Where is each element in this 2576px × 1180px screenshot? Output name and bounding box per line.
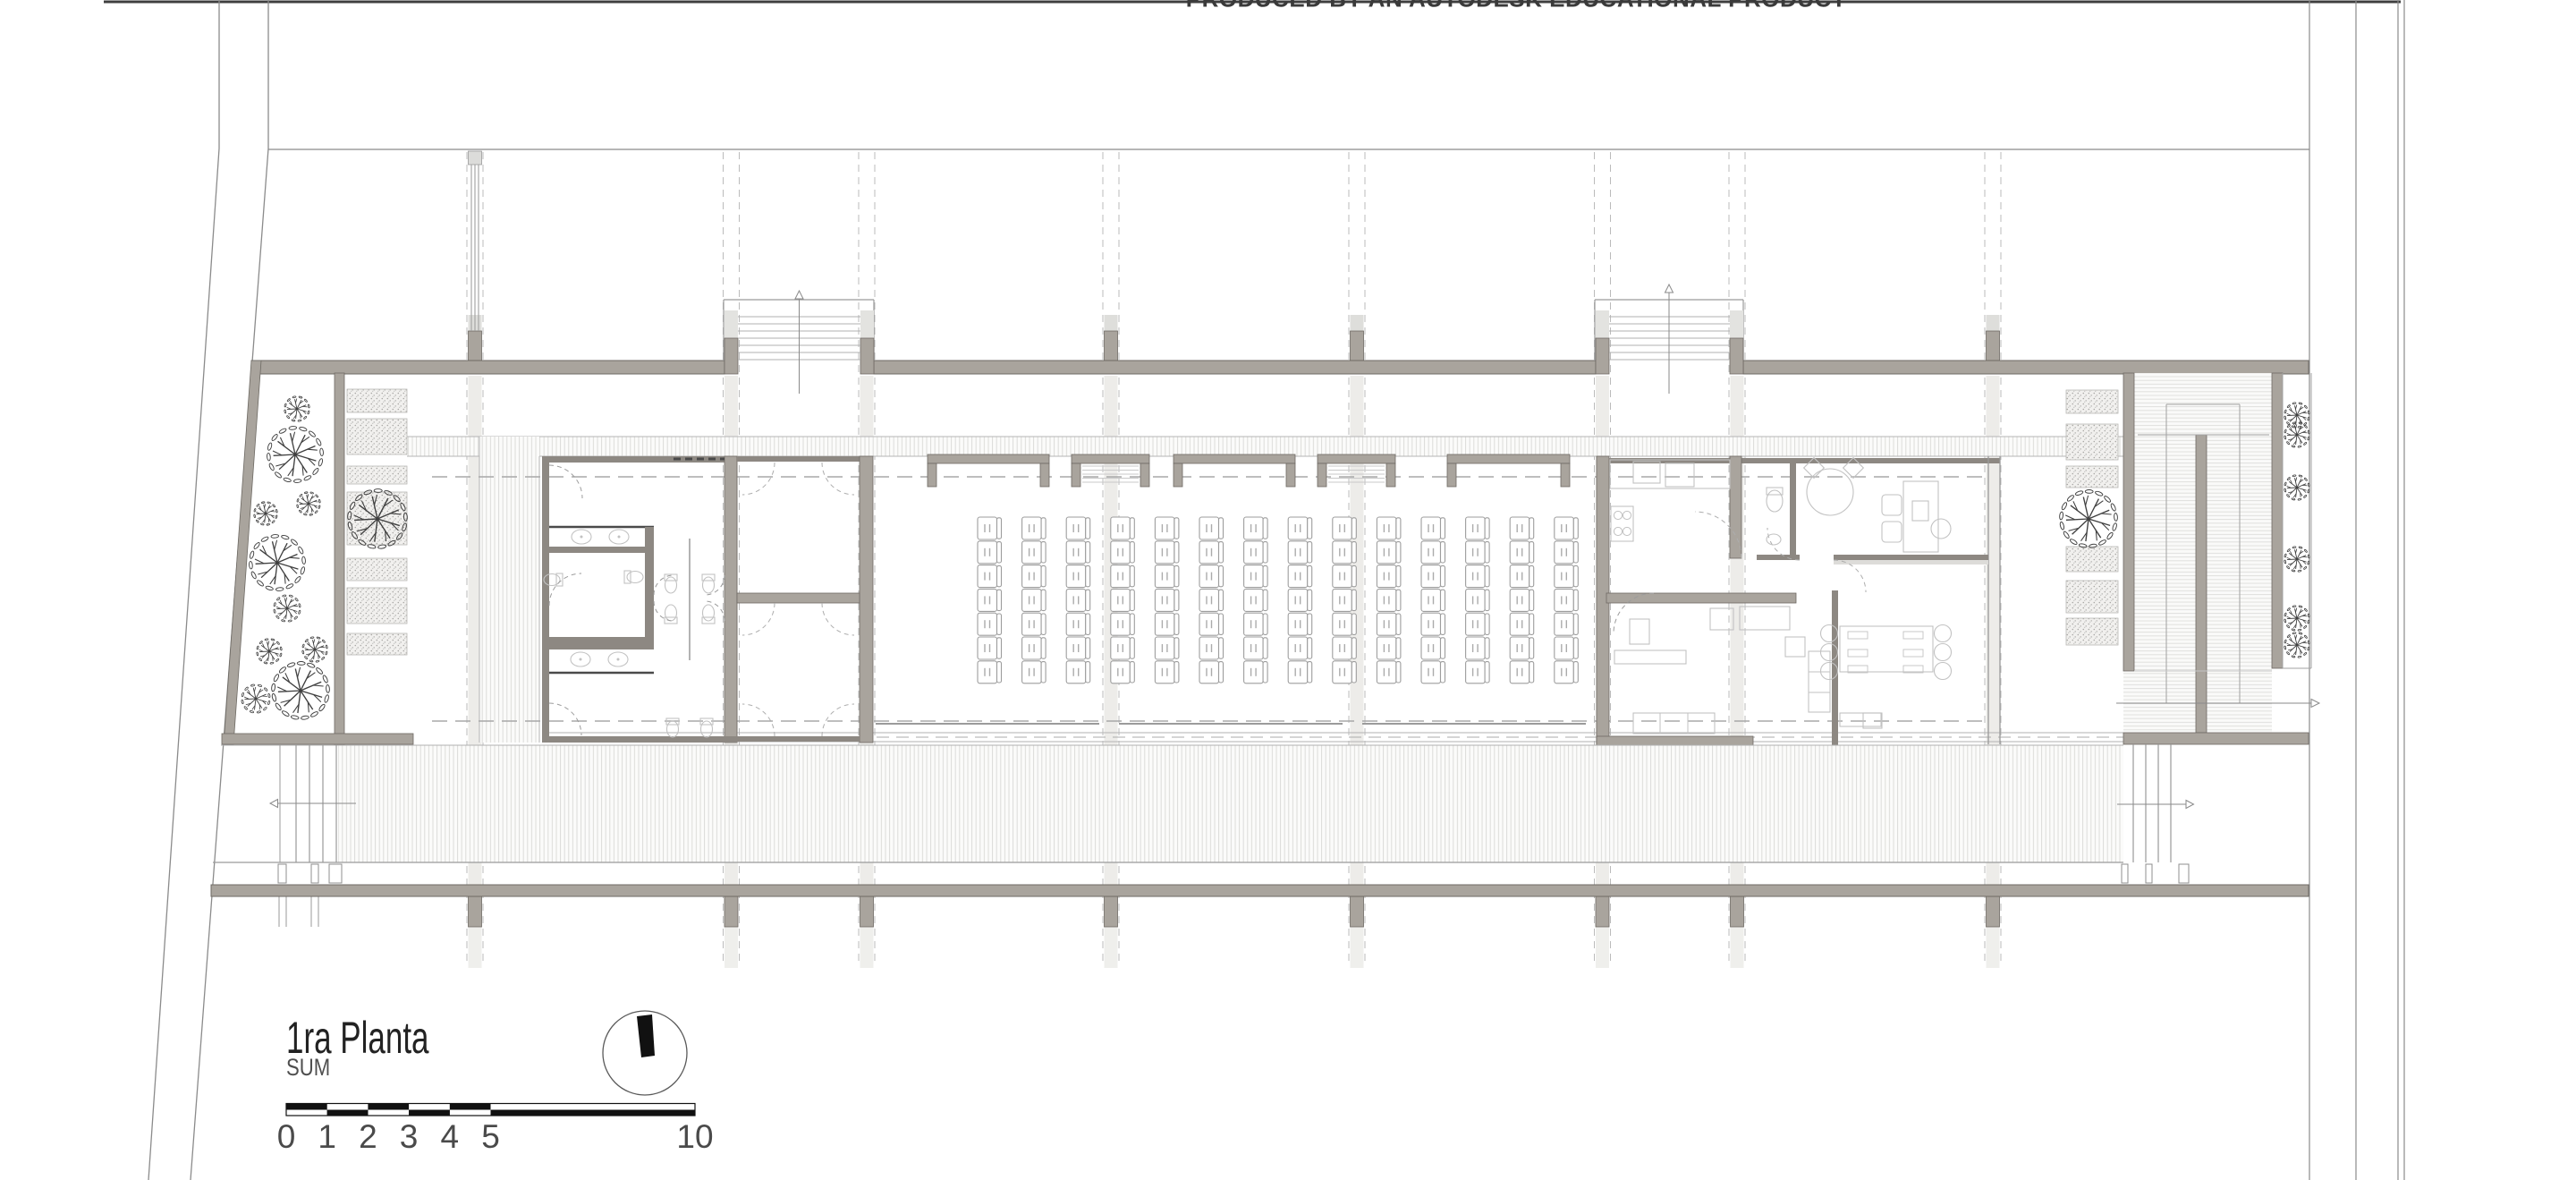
- svg-text:4: 4: [441, 1118, 460, 1155]
- svg-text:0: 0: [277, 1118, 296, 1155]
- svg-text:SUM: SUM: [286, 1055, 330, 1082]
- svg-text:10: 10: [676, 1118, 713, 1155]
- svg-text:PRODUCED BY AN AUTODESK EDUCAT: PRODUCED BY AN AUTODESK EDUCATIONAL PROD…: [1186, 0, 1846, 13]
- svg-text:3: 3: [400, 1118, 419, 1155]
- svg-text:5: 5: [481, 1118, 500, 1155]
- svg-text:1: 1: [318, 1118, 336, 1155]
- svg-text:2: 2: [359, 1118, 377, 1155]
